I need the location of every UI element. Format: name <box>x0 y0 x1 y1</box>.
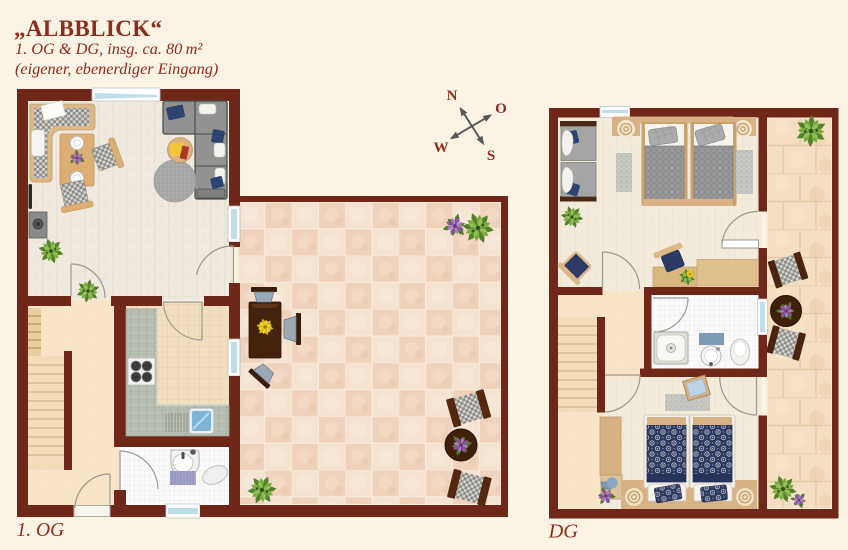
svg-text:N: N <box>447 88 458 104</box>
svg-text:O: O <box>495 101 507 117</box>
svg-text:1. OG: 1. OG <box>17 520 65 541</box>
svg-text:DG: DG <box>548 521 579 543</box>
svg-text:1. OG & DG, insg. ca. 80 m²: 1. OG & DG, insg. ca. 80 m² <box>15 39 203 58</box>
svg-text:W: W <box>434 140 449 156</box>
svg-text:(eigener, ebenerdiger Eingang): (eigener, ebenerdiger Eingang) <box>15 59 218 78</box>
svg-text:„ALBBLICK“: „ALBBLICK“ <box>14 16 162 41</box>
svg-text:S: S <box>487 148 495 164</box>
